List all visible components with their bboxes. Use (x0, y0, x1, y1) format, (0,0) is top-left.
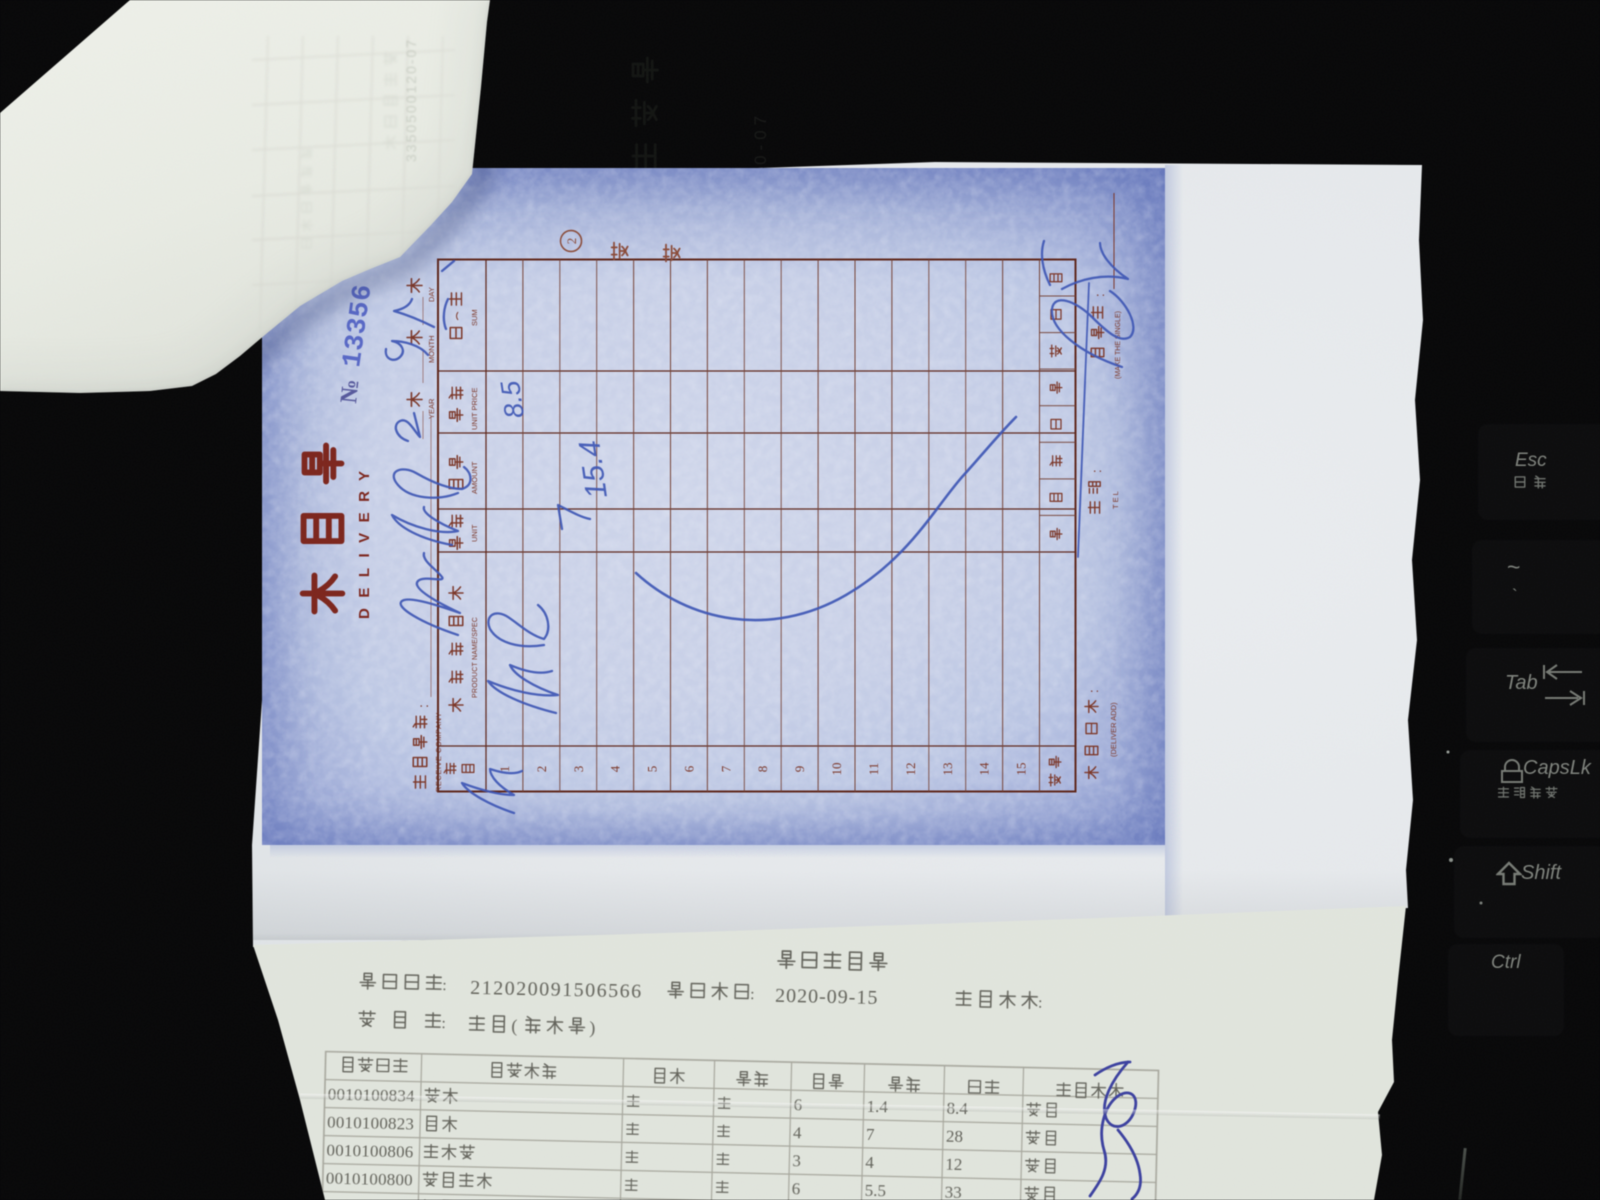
svg-text:3: 3 (571, 766, 586, 773)
svg-text::: : (1086, 689, 1101, 693)
svg-text:15.4: 15.4 (573, 438, 614, 500)
svg-text::: : (1092, 293, 1107, 297)
svg-text:4: 4 (608, 765, 623, 772)
svg-text:8.5: 8.5 (495, 378, 530, 420)
svg-text:№: № (336, 378, 364, 405)
svg-text:8: 8 (755, 766, 770, 773)
svg-text:14: 14 (977, 762, 992, 776)
svg-text:9: 9 (792, 766, 807, 773)
svg-text:YEAR: YEAR (427, 398, 436, 419)
svg-text:2: 2 (534, 766, 549, 773)
svg-text:12: 12 (903, 763, 918, 776)
svg-text::: : (415, 704, 431, 708)
svg-text:7: 7 (718, 765, 733, 772)
svg-text:15: 15 (1014, 763, 1029, 776)
svg-text:6: 6 (681, 765, 696, 772)
svg-text:DELIVERY: DELIVERY (356, 461, 373, 619)
svg-text:(DELIVER ADD): (DELIVER ADD) (1109, 702, 1118, 757)
svg-text:UNIT PRICE: UNIT PRICE (470, 388, 479, 430)
svg-text:5: 5 (645, 766, 660, 773)
svg-text:13: 13 (940, 763, 955, 776)
svg-text:13356: 13356 (338, 282, 379, 369)
svg-text:DAY: DAY (427, 287, 436, 302)
svg-text:11: 11 (866, 763, 881, 776)
svg-text:2: 2 (564, 238, 579, 245)
svg-text:PRODUCT NAME/SPEC: PRODUCT NAME/SPEC (472, 617, 479, 698)
svg-text:UNIT: UNIT (470, 524, 479, 542)
svg-text:SUM: SUM (470, 309, 479, 326)
svg-text:(MAKE THE SINGLE): (MAKE THE SINGLE) (1115, 311, 1122, 379)
svg-text::: : (1089, 469, 1104, 473)
svg-text:10: 10 (829, 763, 844, 776)
svg-text:TEL: TEL (1111, 489, 1120, 509)
svg-text:MONTH: MONTH (427, 336, 436, 364)
svg-text:3350500120-07: 3350500120-07 (403, 38, 419, 162)
